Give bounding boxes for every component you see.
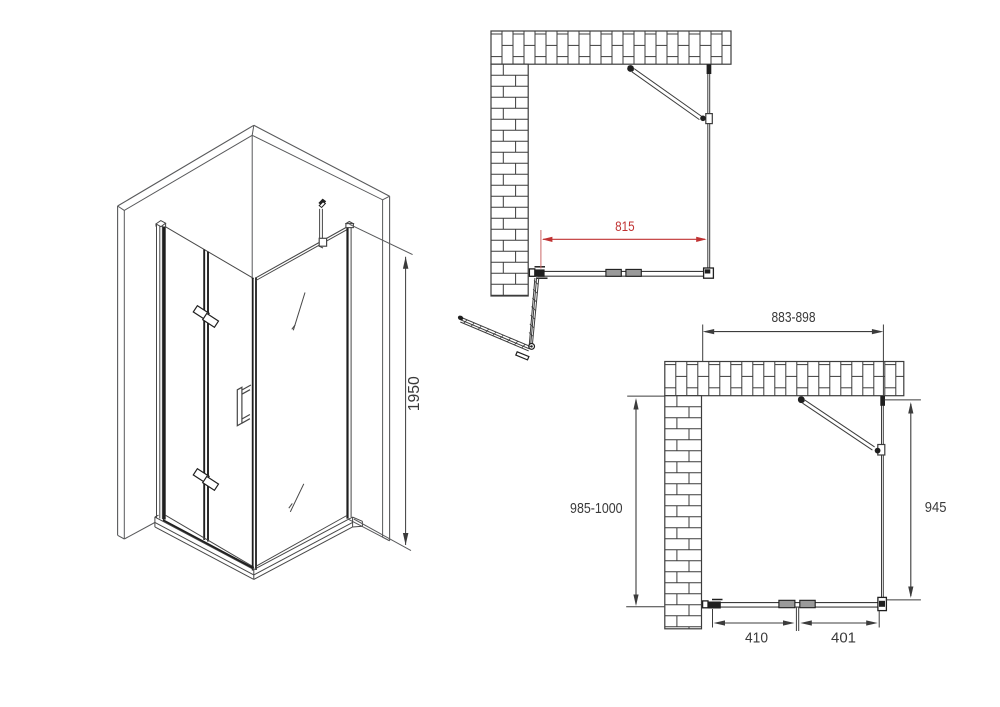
- svg-text:945: 945: [925, 500, 947, 516]
- svg-text:410: 410: [745, 631, 768, 647]
- svg-text:883-898: 883-898: [772, 310, 816, 326]
- svg-text:985-1000: 985-1000: [570, 500, 623, 517]
- svg-text:401: 401: [831, 631, 856, 647]
- svg-text:1950: 1950: [406, 376, 423, 411]
- svg-text:815: 815: [615, 219, 635, 234]
